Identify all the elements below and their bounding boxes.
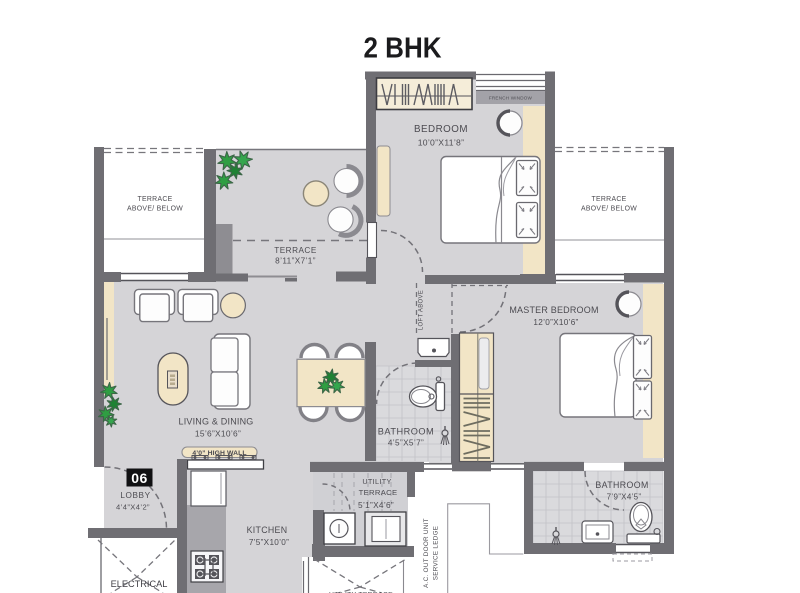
svg-text:ABOVE/ BELOW: ABOVE/ BELOW <box>581 206 637 213</box>
svg-text:SERVICE LEDGE: SERVICE LEDGE <box>433 526 440 581</box>
svg-text:UTILITY: UTILITY <box>362 477 391 486</box>
svg-text:ELECTRICAL: ELECTRICAL <box>111 579 168 589</box>
svg-text:TERRACE: TERRACE <box>591 196 626 203</box>
svg-text:4’4”X4’2”: 4’4”X4’2” <box>116 503 150 512</box>
svg-text:2 BHK: 2 BHK <box>364 33 442 65</box>
svg-text:TERRACE: TERRACE <box>274 246 317 255</box>
svg-text:ABOVE/ BELOW: ABOVE/ BELOW <box>127 206 183 213</box>
svg-text:06: 06 <box>131 470 148 486</box>
svg-text:4’5”X5’7”: 4’5”X5’7” <box>388 439 424 448</box>
svg-text:A.C. OUT DOOR UNIT: A.C. OUT DOOR UNIT <box>423 518 430 588</box>
svg-text:FRENCH WINDOW: FRENCH WINDOW <box>489 95 533 100</box>
svg-text:BATHROOM: BATHROOM <box>378 427 434 437</box>
svg-text:TERRACE: TERRACE <box>137 196 172 203</box>
svg-text:TERRACE: TERRACE <box>359 488 398 497</box>
svg-text:BATHROOM: BATHROOM <box>595 480 648 490</box>
svg-text:7’5”X10’0”: 7’5”X10’0” <box>249 538 289 547</box>
svg-text:15’6”X10’6”: 15’6”X10’6” <box>195 429 241 439</box>
svg-text:7’9”X4’5”: 7’9”X4’5” <box>607 493 642 502</box>
svg-text:LIVING & DINING: LIVING & DINING <box>178 417 253 427</box>
svg-text:12’0”X10’6”: 12’0”X10’6” <box>533 318 578 327</box>
svg-text:LOBBY: LOBBY <box>120 491 150 500</box>
svg-text:4’0” HIGH WALL: 4’0” HIGH WALL <box>192 450 246 457</box>
svg-text:5’1”X4’6”: 5’1”X4’6” <box>358 500 394 510</box>
svg-text:MASTER BEDROOM: MASTER BEDROOM <box>509 305 598 315</box>
svg-text:BEDROOM: BEDROOM <box>414 124 468 135</box>
svg-text:KITCHEN: KITCHEN <box>247 525 288 535</box>
svg-text:LOFT ABOVE: LOFT ABOVE <box>419 290 425 330</box>
svg-text:8’11”X7’1”: 8’11”X7’1” <box>275 257 316 266</box>
svg-text:10’0”X11’8”: 10’0”X11’8” <box>418 138 465 148</box>
